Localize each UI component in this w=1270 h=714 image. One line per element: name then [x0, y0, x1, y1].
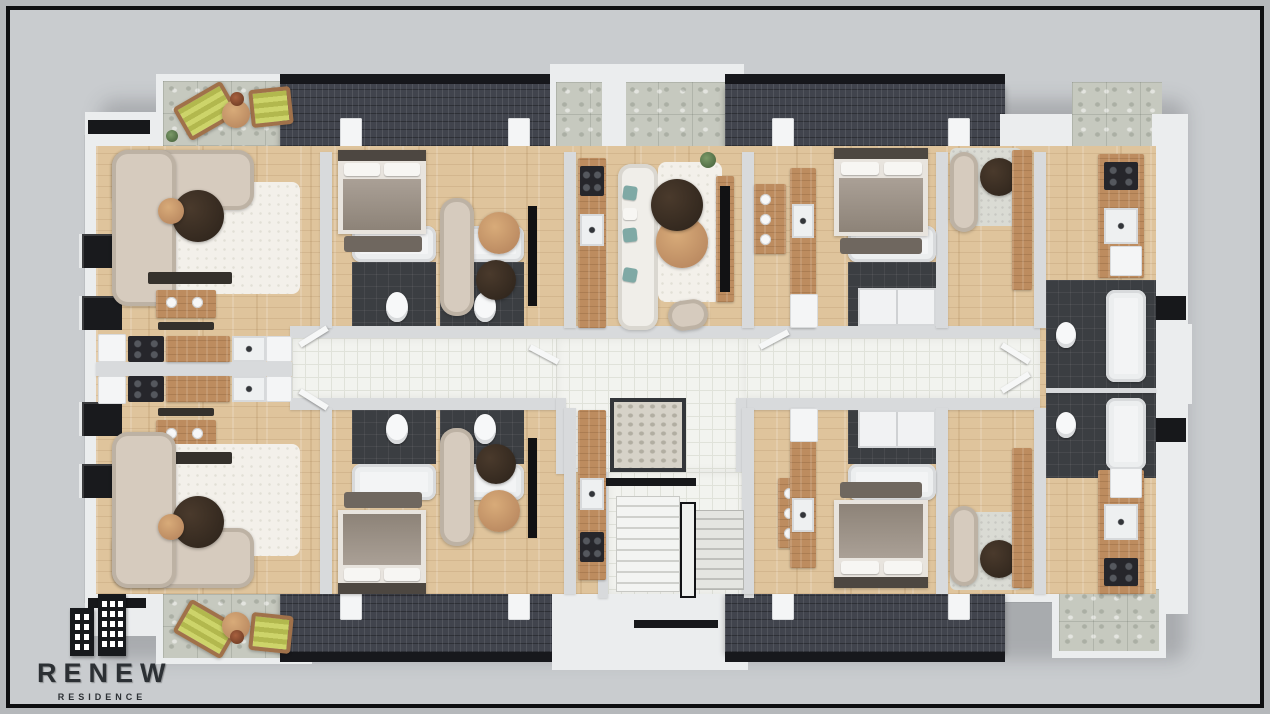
dormer-bottom-left-2	[508, 592, 530, 620]
wardrobe-right-bottom	[858, 410, 936, 448]
logo-subtitle: RESIDENCE	[34, 692, 170, 702]
wall-v4-bottom	[936, 408, 948, 594]
plant-center-top	[700, 152, 716, 168]
tv-unit2-top	[528, 206, 537, 306]
dormer-top-left-2	[508, 118, 530, 148]
cabinet-topleft	[98, 334, 126, 362]
dormer-bottom-right-1	[772, 592, 794, 620]
toilet-topleft-1	[386, 292, 408, 322]
plate-center-3	[760, 234, 771, 245]
shelf-farright-bottom	[1012, 448, 1032, 588]
pillow-bed-topleft-2	[384, 163, 420, 176]
stove-topleft	[128, 336, 164, 362]
sink-center-bottom	[580, 478, 604, 510]
stairs-railing	[680, 502, 696, 598]
pillow-teal-1	[622, 185, 638, 201]
rug-bed-right-top	[840, 238, 922, 254]
plate-topleft-2	[192, 297, 203, 308]
cabinet-farright-top	[1110, 246, 1142, 276]
toilet-farright-bottom	[1056, 412, 1076, 438]
coffee-table-unit2-bottom	[476, 444, 516, 484]
stove-farright-bottom	[1104, 558, 1138, 586]
sofa-farright-bottom	[950, 506, 978, 586]
shelf-farright-top	[1012, 150, 1032, 290]
pillow-bed-topleft-1	[344, 163, 380, 176]
floor-plan	[0, 0, 1270, 714]
wall-v4-top	[936, 152, 948, 328]
washer-right-bottom	[790, 408, 818, 442]
plate-topleft-1	[166, 297, 177, 308]
sink-right-bottom	[792, 498, 814, 532]
sink-topleft	[232, 336, 266, 362]
bench-topleft	[158, 322, 214, 330]
terrace-plant2-topleft	[166, 130, 178, 142]
bathtub-farright-top	[1106, 290, 1146, 382]
lounge-chair-bottomleft-2	[248, 612, 294, 654]
side-table-unit2-top	[478, 212, 520, 254]
plate-center-1	[760, 194, 771, 205]
toilet-bottomleft-2	[474, 414, 496, 444]
wall-v1-top	[320, 152, 332, 328]
sink-center-top	[580, 214, 604, 246]
stairs-right-flight	[694, 510, 744, 590]
dormer-top-left-1	[340, 118, 362, 148]
dormer-top-right-2	[948, 118, 970, 148]
wall-v3-top	[742, 152, 754, 328]
rug-bed-right-bottom	[840, 482, 922, 498]
stove-farright-top	[1104, 162, 1138, 190]
sink-farright-top	[1104, 208, 1138, 244]
lounge-chair-topleft-2	[248, 86, 294, 128]
tv-unit2-bottom	[528, 438, 537, 538]
bed-bottomleft	[338, 510, 426, 594]
pillow-bed-bottomleft-2	[384, 568, 420, 581]
toilet-bottomleft-1	[386, 414, 408, 444]
logo-buildings-icon	[30, 592, 170, 656]
side-table-topleft	[158, 198, 184, 224]
terrace-top-center-stone	[556, 82, 738, 146]
pillow-bed-right-top-2	[884, 162, 922, 175]
sink-bottomleft	[232, 376, 266, 402]
sofa-unit2-bottom	[440, 428, 474, 546]
sofa-unit2-top	[440, 198, 474, 316]
logo-tower-left	[70, 608, 94, 656]
bay-window-left-3	[82, 402, 122, 436]
window-band-top-left	[88, 120, 150, 134]
roof-bottom-right-eave	[725, 652, 1005, 662]
terrace-plant-topleft	[230, 92, 244, 106]
terrace-top-right-stone	[1072, 82, 1162, 146]
pillow-bed-right-bottom-2	[884, 561, 922, 574]
wardrobe-right-top	[858, 288, 936, 326]
wall-left-mid	[96, 362, 292, 376]
plate-bottomleft-2	[192, 428, 203, 439]
stairwell-mat	[634, 620, 718, 628]
pillow-teal-2	[622, 227, 637, 242]
sofa-farright-top	[950, 152, 978, 232]
roof-top-right-eave	[725, 74, 1005, 84]
wall-v5-top	[1034, 152, 1046, 328]
counter-bottomleft	[166, 376, 230, 402]
stove-center-top	[580, 166, 604, 196]
washer-right-top	[790, 294, 818, 328]
right-protrusion	[1154, 324, 1192, 404]
coffee-table-unit2-top	[476, 260, 516, 300]
image-frame: RENEW RESIDENCE	[0, 0, 1270, 714]
tv-console-topleft	[148, 272, 232, 284]
toilet-farright-top	[1056, 322, 1076, 348]
dormer-bottom-right-2	[948, 592, 970, 620]
stove-bottomleft	[128, 376, 164, 402]
terrace-plant-bottomleft	[230, 630, 244, 644]
bed-right-bottom	[834, 500, 928, 588]
logo-name: RENEW	[37, 658, 170, 689]
sink-right-top	[792, 204, 814, 238]
wall-v5-bottom	[1034, 408, 1046, 594]
rug-bed-bottomleft	[344, 492, 422, 508]
stove-center-bottom	[580, 532, 604, 562]
terrace-top-center-column	[602, 64, 626, 150]
pillow-bed-right-bottom-1	[841, 561, 879, 574]
logo: RENEW RESIDENCE	[30, 592, 170, 702]
stairs-left-flight	[616, 496, 680, 592]
wall-v2-bottom	[564, 408, 576, 594]
elevator	[610, 398, 686, 472]
pillow-bed-bottomleft-1	[344, 568, 380, 581]
pillow-white-1	[623, 208, 637, 220]
terrace-bottom-right-stone	[1059, 589, 1159, 651]
bathtub-farright-bottom	[1106, 398, 1146, 470]
logo-tower-left-windows	[75, 614, 80, 620]
bathroom-farright-divider	[1046, 388, 1156, 393]
dormer-top-right-1	[772, 118, 794, 148]
plate-center-2	[760, 214, 771, 225]
side-table-unit2-bottom	[478, 490, 520, 532]
pillow-bed-right-top-1	[841, 162, 879, 175]
counter-topleft	[166, 336, 230, 362]
coffee-table-center-top	[651, 179, 703, 231]
dormer-bottom-left-1	[340, 592, 362, 620]
roof-top-left-eave	[280, 74, 560, 84]
wall-v1-bottom	[320, 408, 332, 594]
wall-v2-top	[564, 152, 576, 328]
rug-bed-topleft	[344, 236, 422, 252]
bench-bottomleft	[158, 408, 214, 416]
dining-table-topleft	[156, 290, 216, 318]
elevator-mat	[600, 478, 696, 486]
logo-tower-right-windows	[102, 601, 107, 607]
side-table-bottomleft	[158, 514, 184, 540]
cabinet-bottomleft	[98, 376, 126, 404]
roof-bottom-left-eave	[280, 652, 560, 662]
pillow-teal-3	[622, 267, 638, 283]
exit-bottom-center-base	[552, 592, 748, 670]
sink-farright-bottom	[1104, 504, 1138, 540]
counter-bottomleft-2	[266, 376, 292, 402]
counter-topleft-2	[266, 336, 292, 362]
cabinet-farright-bottom	[1110, 468, 1142, 498]
sofa-bottomleft-arm-left	[112, 432, 176, 588]
corridor-wall-top	[290, 326, 1040, 338]
tv-center-top	[720, 186, 730, 292]
